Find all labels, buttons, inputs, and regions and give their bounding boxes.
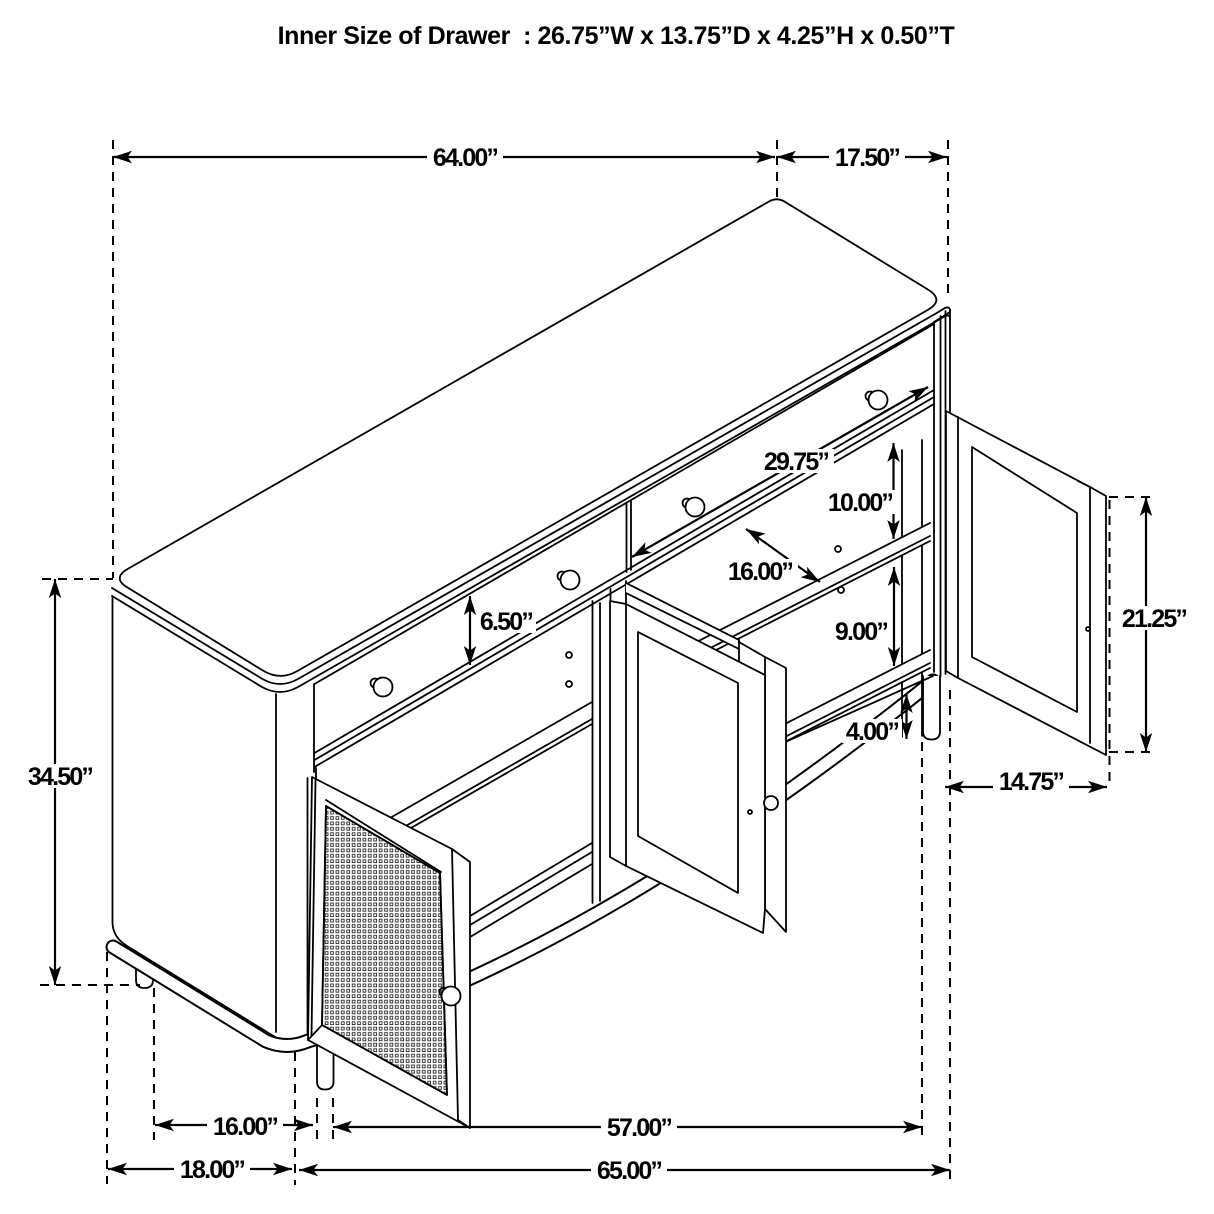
svg-text:34.50”: 34.50” [28, 763, 93, 791]
svg-text:4.00”: 4.00” [846, 718, 898, 746]
svg-text:64.00”: 64.00” [433, 144, 498, 172]
svg-text:16.00”: 16.00” [213, 1113, 278, 1141]
svg-text:17.50”: 17.50” [835, 144, 900, 172]
svg-text:29.75”: 29.75” [764, 448, 829, 476]
svg-text:Inner Size of Drawer : 26.75”: Inner Size of Drawer : 26.75”W x 13.75”D… [278, 22, 955, 50]
svg-text:6.50”: 6.50” [480, 608, 532, 636]
svg-text:21.25”: 21.25” [1122, 605, 1187, 633]
svg-text:57.00”: 57.00” [607, 1114, 672, 1142]
svg-text:10.00”: 10.00” [828, 489, 893, 517]
svg-text:14.75”: 14.75” [999, 768, 1064, 796]
svg-text:16.00”: 16.00” [728, 558, 793, 586]
svg-text:9.00”: 9.00” [835, 618, 887, 646]
svg-text:65.00”: 65.00” [597, 1157, 662, 1185]
svg-text:18.00”: 18.00” [180, 1156, 245, 1184]
